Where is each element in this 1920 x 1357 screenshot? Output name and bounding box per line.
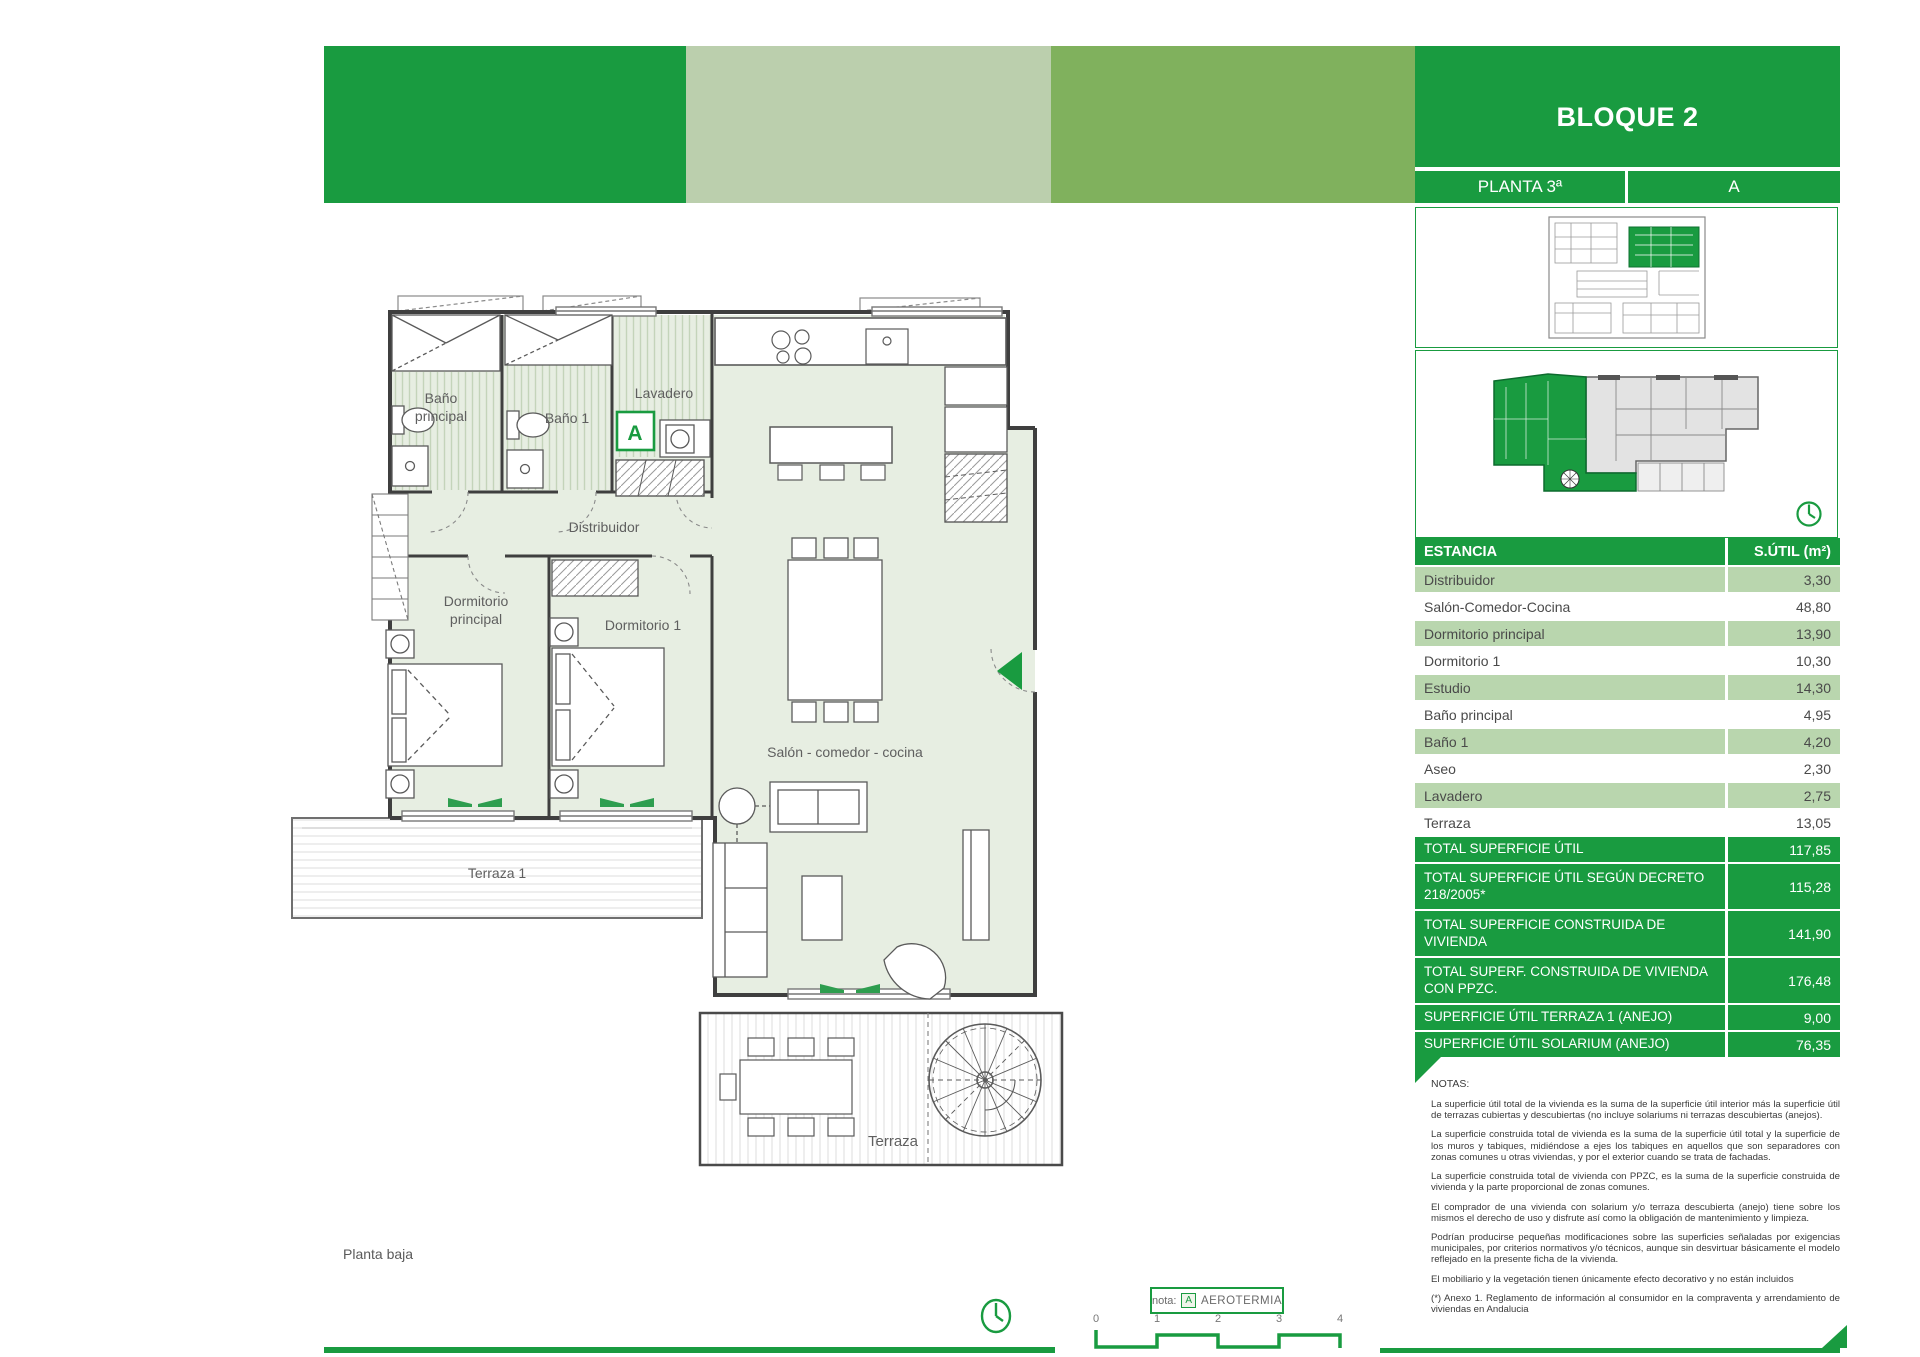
row-name: Distribuidor <box>1415 567 1725 592</box>
distribuidor-label: Distribuidor <box>569 519 640 535</box>
bano-principal-label: Baño <box>425 390 458 406</box>
block-title: BLOQUE 2 <box>1415 46 1840 167</box>
row-value: 4,95 <box>1728 702 1840 727</box>
note-paragraph: (*) Anexo 1. Reglamento de información a… <box>1431 1293 1840 1315</box>
bottom-bar-right <box>1380 1348 1840 1353</box>
total-name: TOTAL SUPERFICIE CONSTRUIDA DE VIVIENDA <box>1415 911 1725 956</box>
note-paragraph: La superficie construida total de vivien… <box>1431 1129 1840 1163</box>
total-row: TOTAL SUPERFICIE CONSTRUIDA DE VIVIENDA1… <box>1415 911 1840 956</box>
dining-set <box>788 538 882 722</box>
bano-principal-label2: principal <box>415 408 467 424</box>
table-row: Distribuidor3,30 <box>1415 567 1840 592</box>
table-row: Terraza13,05 <box>1415 810 1840 835</box>
floor-plan-drawing: A <box>0 0 1414 1357</box>
unit-label: A <box>1628 171 1840 203</box>
table-row: Lavadero2,75 <box>1415 783 1840 808</box>
total-row: SUPERFICIE ÚTIL TERRAZA 1 (ANEJO)9,00 <box>1415 1005 1840 1030</box>
lavadero-label: Lavadero <box>635 385 694 401</box>
total-name: TOTAL SUPERFICIE ÚTIL SEGÚN DECRETO 218/… <box>1415 864 1725 909</box>
notes-corner-triangle <box>1822 1325 1847 1348</box>
table-row: Dormitorio principal13,90 <box>1415 621 1840 646</box>
table-row: Estudio14,30 <box>1415 675 1840 700</box>
row-name: Dormitorio 1 <box>1415 648 1725 673</box>
note-paragraph: Podrían producirse pequeñas modificacion… <box>1431 1232 1840 1266</box>
table-row: Baño 14,20 <box>1415 729 1840 754</box>
total-value: 176,48 <box>1728 958 1840 1003</box>
aerotermia-plan-marker: A <box>617 412 654 450</box>
unit-position-box <box>1415 350 1838 538</box>
site-plan-thumbnail <box>1547 215 1707 340</box>
diagram-outbuilding <box>1638 463 1724 491</box>
row-value: 13,05 <box>1728 810 1840 835</box>
unit-position-diagram <box>1486 369 1766 499</box>
bano-1-label: Baño 1 <box>545 410 590 426</box>
total-value: 115,28 <box>1728 864 1840 909</box>
hall-stairs <box>616 460 704 496</box>
total-name: TOTAL SUPERF. CONSTRUIDA DE VIVIENDA CON… <box>1415 958 1725 1003</box>
notes-title: NOTAS: <box>1431 1078 1840 1090</box>
estancia-table: ESTANCIA S.ÚTIL (m²) Distribuidor3,30 Sa… <box>1415 538 1840 1059</box>
interior-stairs <box>945 367 1007 522</box>
dormitorio-principal-label2: principal <box>450 611 502 627</box>
row-value: 13,90 <box>1728 621 1840 646</box>
table-row: Dormitorio 110,30 <box>1415 648 1840 673</box>
table-row: Aseo2,30 <box>1415 756 1840 781</box>
floor-unit-row: PLANTA 3ª A <box>1415 171 1840 203</box>
row-value: 3,30 <box>1728 567 1840 592</box>
table-header-row: ESTANCIA S.ÚTIL (m²) <box>1415 538 1840 565</box>
laundry-room <box>660 420 710 457</box>
row-name: Salón-Comedor-Cocina <box>1415 594 1725 619</box>
row-value: 2,30 <box>1728 756 1840 781</box>
total-name: TOTAL SUPERFICIE ÚTIL <box>1415 837 1725 862</box>
terraza-label: Terraza <box>868 1133 919 1150</box>
row-name: Baño principal <box>1415 702 1725 727</box>
row-value: 2,75 <box>1728 783 1840 808</box>
total-name: SUPERFICIE ÚTIL TERRAZA 1 (ANEJO) <box>1415 1005 1725 1030</box>
total-value: 141,90 <box>1728 911 1840 956</box>
row-name: Aseo <box>1415 756 1725 781</box>
total-row: TOTAL SUPERFICIE ÚTIL117,85 <box>1415 837 1840 862</box>
row-name: Dormitorio principal <box>1415 621 1725 646</box>
header-panel: BLOQUE 2 PLANTA 3ª A <box>1415 46 1840 203</box>
aerotermia-plan-letter: A <box>627 422 642 445</box>
total-value: 117,85 <box>1728 837 1840 862</box>
total-row: TOTAL SUPERFICIE ÚTIL SEGÚN DECRETO 218/… <box>1415 864 1840 909</box>
table-header-estancia: ESTANCIA <box>1415 538 1725 565</box>
notes-block: NOTAS: La superficie útil total de la vi… <box>1431 1078 1840 1323</box>
row-value: 14,30 <box>1728 675 1840 700</box>
row-value: 10,30 <box>1728 648 1840 673</box>
salon-label: Salón - comedor - cocina <box>767 744 923 760</box>
row-value: 48,80 <box>1728 594 1840 619</box>
row-value: 4,20 <box>1728 729 1840 754</box>
note-paragraph: El comprador de una vivienda con solariu… <box>1431 1202 1840 1224</box>
highlighted-unit <box>1629 227 1699 267</box>
note-paragraph: La superficie construida total de vivien… <box>1431 1171 1840 1193</box>
total-name: SUPERFICIE ÚTIL SOLARIUM (ANEJO) <box>1415 1032 1725 1057</box>
site-plan-box <box>1415 207 1838 348</box>
dormitorio-principal-label: Dormitorio <box>444 593 509 609</box>
table-header-sutil: S.ÚTIL (m²) <box>1728 538 1840 565</box>
row-name: Lavadero <box>1415 783 1725 808</box>
floor-label: PLANTA 3ª <box>1415 171 1625 203</box>
terraza-1-label: Terraza 1 <box>468 865 527 881</box>
row-name: Estudio <box>1415 675 1725 700</box>
north-clock-icon <box>1794 499 1824 529</box>
exterior-stair <box>372 494 408 620</box>
note-paragraph: El mobiliario y la vegetación tienen úni… <box>1431 1274 1840 1285</box>
total-row: SUPERFICIE ÚTIL SOLARIUM (ANEJO)76,35 <box>1415 1032 1840 1057</box>
row-name: Baño 1 <box>1415 729 1725 754</box>
dormitorio-1-label: Dormitorio 1 <box>605 617 681 633</box>
note-paragraph: La superficie útil total de la vivienda … <box>1431 1099 1840 1121</box>
total-row: TOTAL SUPERF. CONSTRUIDA DE VIVIENDA CON… <box>1415 958 1840 1003</box>
table-row: Salón-Comedor-Cocina48,80 <box>1415 594 1840 619</box>
other-units <box>1586 375 1758 473</box>
row-name: Terraza <box>1415 810 1725 835</box>
table-row: Baño principal4,95 <box>1415 702 1840 727</box>
floorplan-sheet: BLOQUE 2 PLANTA 3ª A <box>0 0 1920 1357</box>
total-value: 9,00 <box>1728 1005 1840 1030</box>
total-value: 76,35 <box>1728 1032 1840 1057</box>
